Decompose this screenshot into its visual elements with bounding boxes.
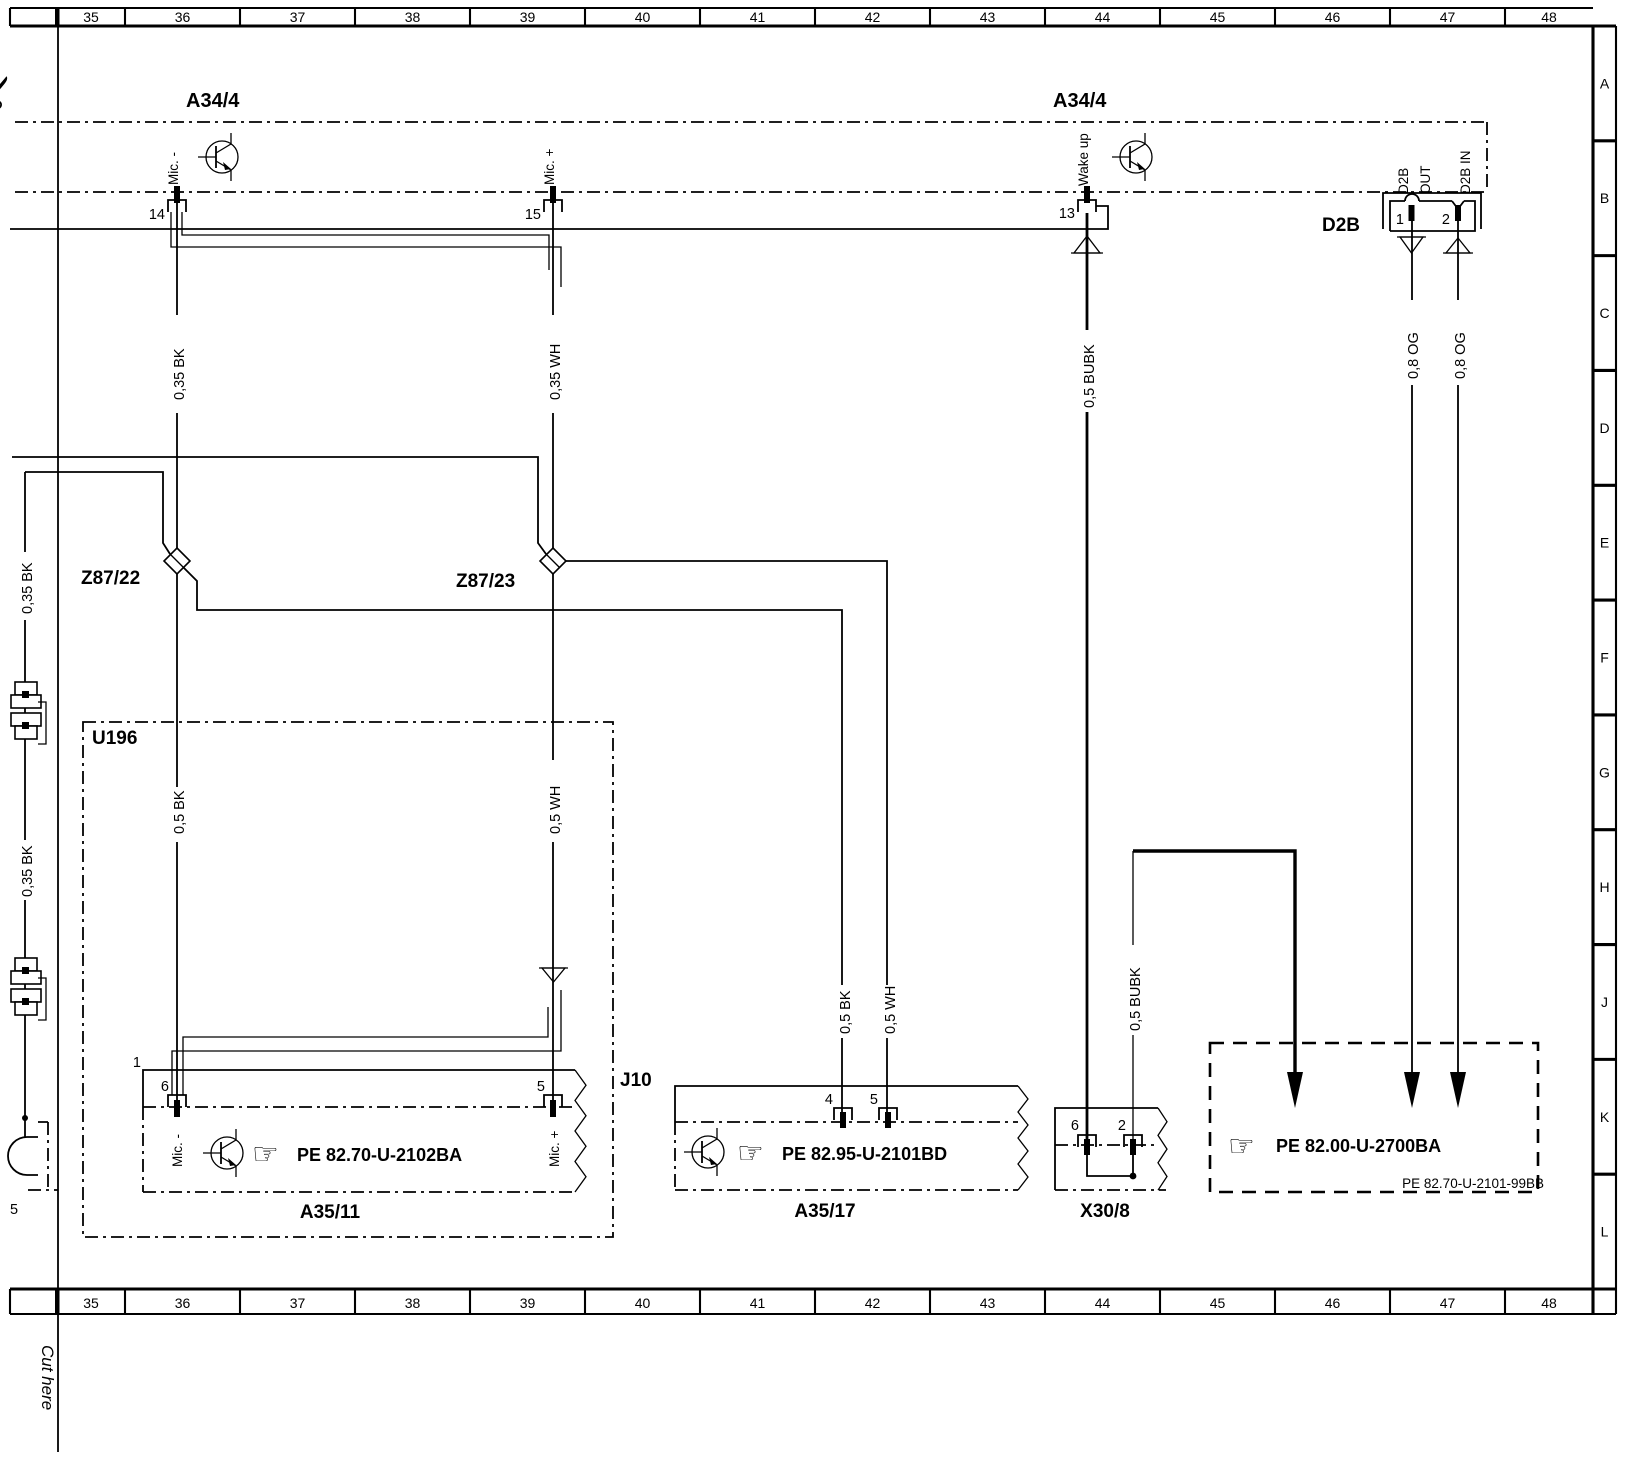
z87-22-label: Z87/22	[81, 568, 140, 589]
a35-11-pin-5-function: Mic. +	[547, 1131, 562, 1167]
x30-8-label: X30/8	[1080, 1201, 1130, 1222]
shield-loop-top	[171, 212, 561, 287]
ruler-number: 39	[520, 1295, 536, 1311]
ruler-letter: H	[1599, 879, 1609, 895]
wire-label: 0,5 WH	[548, 786, 564, 834]
ruler-number: 47	[1440, 9, 1456, 25]
ruler-letter: G	[1599, 764, 1610, 780]
d2b-label: D2B	[1322, 215, 1360, 236]
pin-13-number: 13	[1059, 206, 1075, 222]
pin-15-number: 15	[525, 207, 541, 223]
pin-14-function: Mic. -	[166, 152, 181, 185]
ruler-number: 37	[290, 9, 306, 25]
z87-23-label: Z87/23	[456, 571, 515, 592]
a35-11-conn-1: 1	[133, 1055, 141, 1071]
cut-here-label: Cut here	[38, 1345, 57, 1410]
a35-17-pin-4: 4	[825, 1092, 833, 1108]
u196-label: U196	[92, 728, 137, 749]
shield-loop-bottom	[172, 990, 561, 1095]
wire-label: 0,5 BK	[838, 990, 854, 1034]
a35-17-label: A35/17	[794, 1201, 855, 1222]
d2b-pin-1-function-line1: D2B	[1396, 168, 1411, 194]
d2b-pin-2-number: 2	[1442, 212, 1450, 228]
ruler-number: 43	[980, 1295, 996, 1311]
a35-11-label: A35/11	[300, 1202, 361, 1223]
ruler-number: 44	[1095, 1295, 1111, 1311]
ruler-letter: C	[1599, 305, 1609, 321]
left-microphone-stub	[8, 1115, 58, 1190]
ruler-number: 38	[405, 1295, 421, 1311]
a35-11-box	[143, 1070, 586, 1192]
arrowheads	[1287, 1072, 1466, 1108]
ruler-letter: E	[1600, 535, 1609, 551]
left-stub-pin-5: 5	[10, 1202, 18, 1218]
wire-label: 0,5 BK	[172, 790, 188, 834]
a34-4-left-label: A34/4	[186, 90, 240, 112]
wire-label: 0,35 BK	[20, 845, 36, 897]
ruler-letter: K	[1600, 1109, 1610, 1125]
wire-wake-up-run	[10, 206, 1108, 229]
ruler-number: 48	[1541, 9, 1557, 25]
direction-arrows	[539, 236, 1473, 982]
wire-x308-internal	[1087, 1155, 1133, 1176]
pointing-hand-icon: ☞	[1228, 1130, 1255, 1163]
d2b-pin-1-number: 1	[1396, 212, 1404, 228]
pin-13-function: Wake up	[1076, 133, 1091, 186]
ruler-letter: L	[1601, 1224, 1609, 1240]
wire-label: 0,5 BUBK	[1128, 967, 1144, 1031]
ruler-number: 44	[1095, 9, 1111, 25]
a35-11-pin-6: 6	[161, 1079, 169, 1095]
ruler-number: 42	[865, 1295, 881, 1311]
pin-terminals-top	[168, 186, 1096, 212]
ruler-letter: F	[1600, 650, 1609, 666]
ruler-number: 41	[750, 9, 766, 25]
a34-4-right-label: A34/4	[1053, 90, 1107, 112]
a35-11-pin-5: 5	[537, 1079, 545, 1095]
ruler-number: 36	[175, 9, 191, 25]
d2b-pin-1-function-line2: OUT	[1418, 166, 1433, 195]
wire-label: 0,8 OG	[1453, 332, 1469, 379]
transistor-icon	[1112, 133, 1152, 181]
ruler-letter: A	[1600, 75, 1610, 91]
ruler-number: 43	[980, 9, 996, 25]
wire-label: 0,35 BK	[20, 562, 36, 614]
x30-8-pin-2: 2	[1118, 1118, 1126, 1134]
ruler-number: 46	[1325, 9, 1341, 25]
ruler-number: 35	[83, 1295, 99, 1311]
ruler-number: 37	[290, 1295, 306, 1311]
ruler-number: 40	[635, 9, 651, 25]
ruler-number: 38	[405, 9, 421, 25]
a35-11-pe-ref: PE 82.70-U-2102BA	[297, 1145, 462, 1165]
ruler-number: 36	[175, 1295, 191, 1311]
junction-dot	[1130, 1173, 1137, 1180]
pointing-hand-icon: ☞	[252, 1138, 279, 1171]
wire-label: 0,35 WH	[548, 344, 564, 400]
drawing-number: PE 82.70-U-2101-99BB	[1402, 1176, 1544, 1191]
wire-z8723-branch	[566, 561, 887, 1120]
pin-15-function: Mic. +	[542, 149, 557, 185]
ruler-letter: J	[1601, 994, 1608, 1010]
wiring-diagram-page: 3536373839404142434445464748 35363738394…	[0, 0, 1640, 1472]
ruler-number: 45	[1210, 9, 1226, 25]
scissors-icon: ✂	[0, 64, 27, 117]
ruler-number: 47	[1440, 1295, 1456, 1311]
ruler-number: 48	[1541, 1295, 1557, 1311]
ruler-letter: D	[1599, 420, 1609, 436]
transistor-icon	[198, 133, 238, 181]
pin-14-number: 14	[149, 207, 165, 223]
a35-17-pin-5: 5	[870, 1092, 878, 1108]
a34-4-box	[15, 122, 1487, 192]
wire-to-ref-box	[1133, 851, 1295, 1072]
ruler-number: 45	[1210, 1295, 1226, 1311]
ruler-number: 39	[520, 9, 536, 25]
wiring	[10, 203, 1458, 1179]
inline-connector-symbol	[11, 958, 46, 1020]
wire-labels: 0,35 BK 0,35 WH 0,5 BUBK 0,8 OG 0,8 OG 0…	[20, 332, 1469, 1034]
wire-label: 0,5 WH	[883, 986, 899, 1034]
ruler-number: 42	[865, 9, 881, 25]
j10-label: J10	[620, 1070, 652, 1091]
x30-8-pin-6: 6	[1071, 1118, 1079, 1134]
a35-17-pe-ref: PE 82.95-U-2101BD	[782, 1144, 947, 1164]
ruler-letter: B	[1600, 190, 1609, 206]
ref-dashed-box	[1210, 1043, 1538, 1192]
a35-11-pin-6-function: Mic. -	[170, 1134, 185, 1167]
bottom-ruler: 3536373839404142434445464748	[10, 1289, 1616, 1314]
ruler-number: 41	[750, 1295, 766, 1311]
ref-box-pe-ref: PE 82.00-U-2700BA	[1276, 1136, 1441, 1156]
wire-label: 0,8 OG	[1406, 332, 1422, 379]
a35-17-box	[675, 1086, 1028, 1190]
ruler-number: 40	[635, 1295, 651, 1311]
inline-connector-symbol	[11, 682, 46, 744]
pointing-hand-icon: ☞	[737, 1137, 764, 1170]
wire-left-to-z8722	[25, 472, 170, 554]
wire-label: 0,5 BUBK	[1082, 344, 1098, 408]
ruler-number: 35	[83, 9, 99, 25]
transistor-icon	[203, 1129, 243, 1177]
right-ruler: ABCDEFGHJKL	[1593, 26, 1616, 1314]
top-ruler: 3536373839404142434445464748	[10, 8, 1616, 26]
ruler-number: 46	[1325, 1295, 1341, 1311]
transistor-icon	[684, 1128, 724, 1176]
d2b-pin-2-function: D2B IN	[1458, 150, 1473, 194]
wire-label: 0,35 BK	[172, 348, 188, 400]
